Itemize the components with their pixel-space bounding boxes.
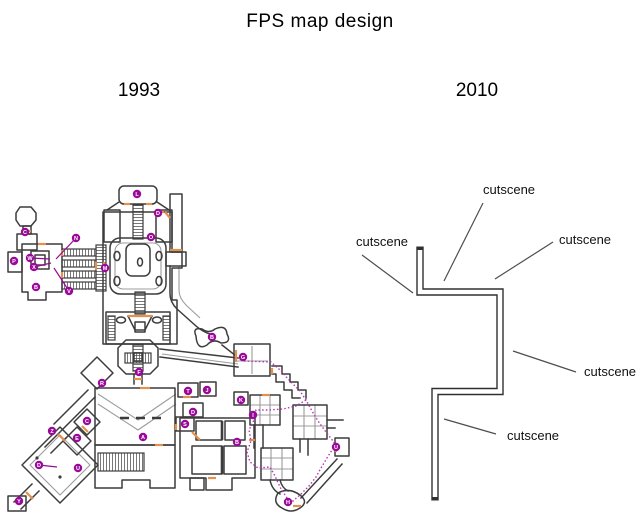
- cutscene-pointer-line: [513, 351, 576, 372]
- svg-text:O: O: [149, 235, 154, 241]
- map-marker-b: B: [208, 333, 216, 341]
- svg-text:G: G: [241, 355, 245, 361]
- map-marker-r: R: [98, 379, 106, 387]
- cutscene-label: cutscene: [483, 182, 535, 197]
- map-marker-o: O: [147, 233, 155, 241]
- map-marker-y: Y: [15, 497, 23, 505]
- svg-text:C: C: [23, 230, 27, 236]
- map-marker-d: D: [154, 209, 162, 217]
- map-marker-p: P: [10, 257, 18, 265]
- map-marker-g: G: [239, 353, 247, 361]
- cutscene-pointer-line: [362, 255, 413, 293]
- map-marker-k: K: [237, 396, 245, 404]
- svg-text:U: U: [76, 466, 80, 472]
- svg-text:N: N: [74, 236, 78, 242]
- svg-text:X: X: [32, 265, 36, 271]
- map-marker-a: A: [139, 433, 147, 441]
- svg-text:Y: Y: [17, 499, 21, 505]
- map-marker-z: Z: [48, 427, 56, 435]
- map-marker-c: C: [21, 228, 29, 236]
- map-marker-e: E: [73, 434, 81, 442]
- cutscene-pointer-line: [444, 203, 483, 281]
- map-marker-x: X: [30, 263, 38, 271]
- svg-text:C: C: [85, 419, 89, 425]
- svg-text:J: J: [205, 388, 208, 394]
- svg-text:B: B: [235, 440, 239, 446]
- svg-text:D: D: [191, 410, 195, 416]
- doom-map-1993: CPWXNVBMLDOBFRZCEDUYATJDSGKIBUH: [8, 186, 349, 511]
- map-marker-d: D: [189, 408, 197, 416]
- svg-text:B: B: [210, 335, 214, 341]
- cutscene-pointer-line: [495, 242, 553, 279]
- svg-text:A: A: [141, 435, 145, 441]
- map-marker-d: D: [35, 461, 43, 469]
- map-marker-u: U: [332, 443, 340, 451]
- map-walls: [8, 186, 349, 511]
- fps-map-design-figure: FPS map design 1993 2010: [0, 0, 640, 516]
- svg-text:B: B: [34, 285, 38, 291]
- map-marker-j: J: [203, 386, 211, 394]
- map-stairs-vertical: [96, 205, 170, 371]
- map-marker-w: W: [26, 254, 34, 262]
- map-marker-s: S: [181, 420, 189, 428]
- map-marker-c: C: [83, 417, 91, 425]
- map-marker-b: B: [32, 283, 40, 291]
- svg-text:M: M: [103, 266, 108, 272]
- map-marker-n: N: [72, 234, 80, 242]
- map-marker-i: I: [249, 411, 257, 419]
- map-marker-f: F: [135, 368, 143, 376]
- svg-text:U: U: [334, 445, 338, 451]
- svg-text:K: K: [239, 398, 243, 404]
- svg-text:R: R: [100, 381, 104, 387]
- map-marker-h: H: [284, 498, 292, 506]
- svg-text:H: H: [286, 500, 290, 506]
- svg-text:P: P: [12, 259, 16, 265]
- cutscene-label: cutscene: [584, 364, 636, 379]
- cutscene-label: cutscene: [356, 234, 408, 249]
- cutscene-label: cutscene: [559, 232, 611, 247]
- svg-text:W: W: [27, 256, 33, 262]
- map-marker-m: M: [101, 264, 109, 272]
- svg-text:S: S: [183, 422, 187, 428]
- cutscene-label: cutscene: [507, 428, 559, 443]
- svg-text:E: E: [75, 436, 79, 442]
- map-marker-b: B: [233, 438, 241, 446]
- cutscene-pointer-line: [444, 419, 496, 434]
- svg-text:V: V: [67, 289, 71, 295]
- svg-text:D: D: [156, 211, 160, 217]
- map-marker-v: V: [65, 287, 73, 295]
- corridor-walls: [420, 247, 500, 501]
- map-marker-t: T: [184, 387, 192, 395]
- map-marker-u: U: [74, 464, 82, 472]
- svg-text:D: D: [37, 463, 41, 469]
- map-marker-l: L: [133, 190, 141, 198]
